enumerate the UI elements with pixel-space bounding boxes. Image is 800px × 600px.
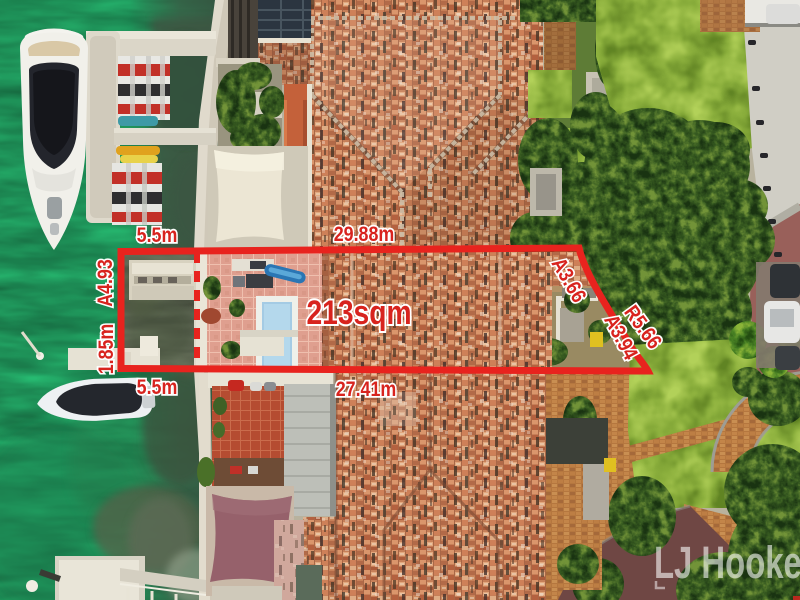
svg-text:1.85m: 1.85m bbox=[95, 324, 119, 375]
svg-text:5.5m: 5.5m bbox=[137, 224, 178, 248]
svg-text:27.41m: 27.41m bbox=[336, 378, 396, 402]
svg-text:5.5m: 5.5m bbox=[137, 376, 178, 400]
svg-text:213sqm: 213sqm bbox=[306, 294, 411, 332]
svg-text:LJ Hooker: LJ Hooker bbox=[654, 538, 800, 588]
svg-text:29.88m: 29.88m bbox=[334, 223, 394, 247]
svg-text:A4.93: A4.93 bbox=[94, 259, 118, 307]
